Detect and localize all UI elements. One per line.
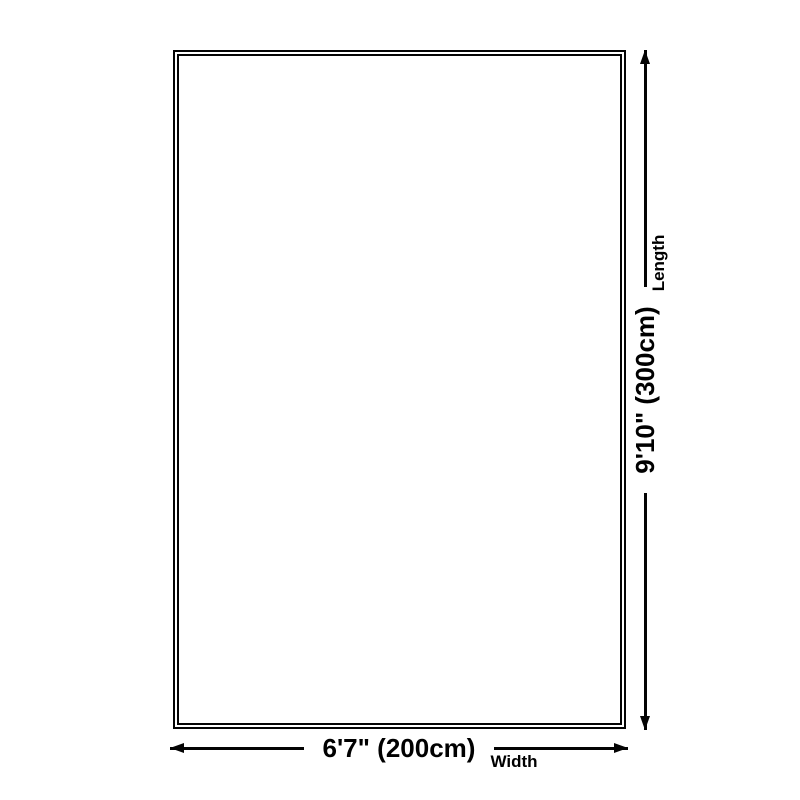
width-value: 6'7" (200cm): [304, 735, 495, 761]
width-caption: Width: [490, 753, 537, 770]
arrow-left-icon: [170, 747, 304, 750]
length-caption: Length: [650, 235, 667, 292]
rug-outline: [173, 50, 626, 729]
arrow-down-icon: [644, 493, 647, 730]
dimension-diagram: 6'7" (200cm) Width 9'10" (300cm) Length: [0, 0, 800, 800]
rug-inner-border: [177, 54, 622, 725]
arrow-up-icon: Length: [644, 50, 647, 287]
length-value: 9'10" (300cm): [632, 287, 658, 492]
arrow-right-icon: Width: [494, 747, 628, 750]
